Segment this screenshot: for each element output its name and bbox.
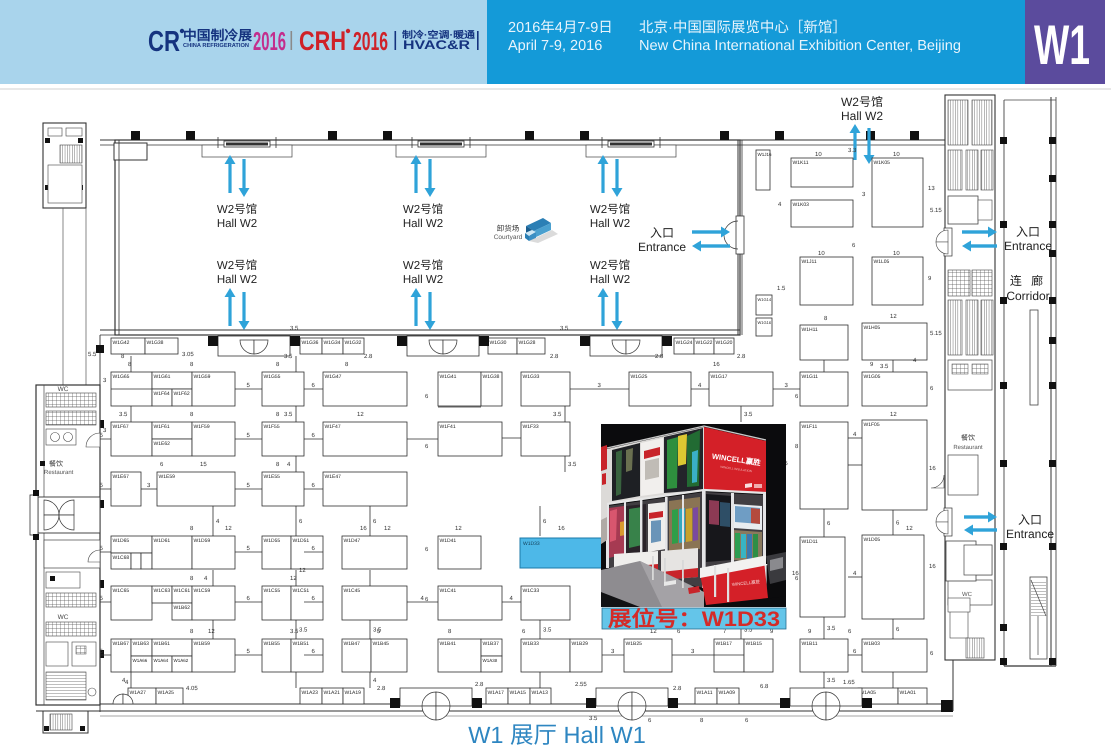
svg-text:2016: 2016 — [253, 26, 286, 56]
svg-text:Restaurant: Restaurant — [44, 469, 74, 476]
svg-text:W1G11: W1G11 — [802, 374, 819, 380]
svg-text:W1F41: W1F41 — [440, 424, 456, 430]
svg-text:入口: 入口 — [650, 226, 674, 240]
svg-text:W1C68: W1C68 — [113, 555, 130, 561]
svg-text:W1A17: W1A17 — [488, 690, 505, 696]
svg-text:3.5: 3.5 — [290, 325, 299, 332]
svg-text:3.5: 3.5 — [543, 627, 552, 634]
svg-text:W1F11: W1F11 — [802, 424, 818, 430]
svg-text:3.5: 3.5 — [284, 353, 293, 360]
svg-text:16: 16 — [713, 361, 720, 368]
svg-text:W1A11: W1A11 — [697, 690, 713, 696]
svg-text:2.8: 2.8 — [737, 353, 746, 360]
svg-text:W1G33: W1G33 — [523, 374, 540, 380]
svg-text:12: 12 — [208, 628, 215, 635]
svg-text:W1A23: W1A23 — [302, 690, 319, 696]
svg-text:连 廊: 连 廊 — [1010, 274, 1046, 288]
svg-text:W1E62: W1E62 — [154, 441, 171, 447]
svg-text:W1B15: W1B15 — [746, 641, 763, 647]
svg-text:W1B63: W1B63 — [133, 641, 150, 647]
svg-text:W1G38: W1G38 — [147, 340, 164, 346]
svg-text:HVAC&R: HVAC&R — [403, 38, 470, 52]
svg-text:W1G17: W1G17 — [711, 374, 728, 380]
svg-text:W1F05: W1F05 — [864, 422, 880, 428]
svg-text:Hall W2: Hall W2 — [590, 274, 630, 286]
svg-text:W1B62: W1B62 — [174, 605, 191, 611]
svg-text:W1K11: W1K11 — [793, 160, 809, 166]
svg-text:W1K05: W1K05 — [874, 160, 891, 166]
svg-text:10: 10 — [893, 250, 900, 257]
svg-text:3.5: 3.5 — [827, 677, 836, 684]
svg-text:12: 12 — [890, 411, 897, 418]
svg-text:W1B55: W1B55 — [264, 641, 281, 647]
svg-text:W1A38: W1A38 — [483, 658, 498, 663]
svg-text:W1G28: W1G28 — [519, 340, 536, 346]
svg-text:W1C63: W1C63 — [154, 588, 171, 594]
svg-text:W1J11: W1J11 — [802, 259, 817, 265]
svg-text:W2号馆: W2号馆 — [403, 203, 443, 216]
svg-text:2.8: 2.8 — [364, 353, 373, 360]
svg-text:W1E67: W1E67 — [113, 474, 130, 480]
svg-text:W1D65: W1D65 — [113, 538, 130, 544]
svg-text:W1G55: W1G55 — [264, 374, 281, 380]
svg-text:中国制冷展: 中国制冷展 — [183, 28, 253, 43]
svg-text:W1L05: W1L05 — [874, 259, 890, 265]
svg-text:5.15: 5.15 — [930, 330, 942, 337]
svg-text:W2号馆: W2号馆 — [590, 259, 630, 272]
svg-text:WC: WC — [58, 386, 69, 393]
svg-text:2016: 2016 — [353, 26, 388, 56]
svg-text:W1A66: W1A66 — [133, 658, 148, 663]
svg-text:15: 15 — [200, 461, 207, 468]
svg-text:3.5: 3.5 — [284, 411, 293, 418]
svg-text:W1C33: W1C33 — [523, 588, 540, 594]
svg-text:W2号馆: W2号馆 — [217, 259, 257, 272]
svg-text:W1D51: W1D51 — [293, 538, 310, 544]
svg-text:餐饮: 餐饮 — [961, 434, 975, 442]
svg-text:W1B67: W1B67 — [113, 641, 130, 647]
svg-text:W1F67: W1F67 — [113, 424, 129, 430]
svg-text:WC: WC — [962, 591, 973, 598]
svg-text:W1G14: W1G14 — [758, 297, 772, 302]
svg-text:W1G30: W1G30 — [490, 340, 507, 346]
svg-text:12: 12 — [299, 567, 306, 574]
svg-text:W1J16: W1J16 — [758, 152, 773, 157]
svg-text:W1A13: W1A13 — [532, 690, 549, 696]
svg-text:Entrance: Entrance — [1004, 239, 1052, 253]
svg-text:W1B45: W1B45 — [373, 641, 390, 647]
svg-text:12: 12 — [455, 525, 462, 532]
svg-text:2.8: 2.8 — [377, 685, 386, 692]
svg-text:W1G36: W1G36 — [302, 340, 319, 346]
svg-text:W1G42: W1G42 — [113, 340, 130, 346]
svg-text:10: 10 — [893, 151, 900, 158]
svg-text:W1F64: W1F64 — [154, 391, 170, 397]
svg-text:Restaurant: Restaurant — [953, 444, 983, 451]
svg-text:Hall W2: Hall W2 — [217, 218, 257, 230]
svg-text:2016年4月7-9日: 2016年4月7-9日 — [508, 19, 613, 36]
svg-text:3.05: 3.05 — [182, 351, 194, 358]
svg-text:W1A27: W1A27 — [130, 690, 147, 696]
svg-text:CR: CR — [148, 26, 180, 58]
svg-text:W1D61: W1D61 — [154, 538, 171, 544]
svg-text:WC: WC — [58, 614, 69, 621]
svg-text:W1D11: W1D11 — [802, 539, 819, 545]
svg-text:Hall W2: Hall W2 — [403, 218, 443, 230]
svg-text:W1G38: W1G38 — [483, 374, 500, 380]
svg-text:W1F62: W1F62 — [174, 391, 190, 397]
svg-text:W1C51: W1C51 — [293, 588, 310, 594]
svg-text:W1F55: W1F55 — [264, 424, 280, 430]
svg-text:入口: 入口 — [1016, 225, 1040, 239]
svg-text:W1A19: W1A19 — [345, 690, 362, 696]
svg-text:New China International Exhibi: New China International Exhibition Cente… — [639, 38, 961, 54]
svg-text:W1A21: W1A21 — [324, 690, 341, 696]
svg-text:W2号馆: W2号馆 — [217, 203, 257, 216]
svg-text:W1B11: W1B11 — [802, 641, 818, 647]
svg-text:W1 展厅 Hall W1: W1 展厅 Hall W1 — [468, 722, 646, 748]
svg-text:W1A01: W1A01 — [900, 690, 917, 696]
svg-text:W1A09: W1A09 — [719, 690, 736, 696]
svg-text:餐饮: 餐饮 — [49, 460, 63, 468]
svg-text:W1G47: W1G47 — [325, 374, 342, 380]
svg-text:3.5: 3.5 — [553, 411, 562, 418]
svg-text:12: 12 — [357, 411, 364, 418]
svg-text:3.5: 3.5 — [744, 411, 753, 418]
svg-text:W1G59: W1G59 — [194, 374, 211, 380]
svg-text:W1D33: W1D33 — [523, 541, 540, 547]
svg-text:W1C59: W1C59 — [194, 588, 211, 594]
svg-text:3.5: 3.5 — [290, 628, 299, 635]
svg-text:3.3: 3.3 — [848, 147, 857, 154]
svg-text:6.8: 6.8 — [760, 683, 769, 690]
svg-text:W1B29: W1B29 — [572, 641, 589, 647]
svg-text:W1B59: W1B59 — [194, 641, 211, 647]
svg-text:W1H11: W1H11 — [802, 327, 819, 333]
svg-text:2.8: 2.8 — [655, 353, 664, 360]
svg-text:16: 16 — [360, 525, 367, 532]
svg-text:W1E59: W1E59 — [159, 474, 176, 480]
svg-text:1.65: 1.65 — [843, 679, 855, 686]
svg-text:W1C61: W1C61 — [174, 588, 191, 594]
svg-text:CRH: CRH — [299, 26, 346, 56]
svg-text:Entrance: Entrance — [638, 240, 686, 254]
svg-text:W1C65: W1C65 — [113, 588, 130, 594]
svg-text:Entrance: Entrance — [1006, 527, 1054, 541]
svg-text:10: 10 — [815, 151, 822, 158]
svg-text:13: 13 — [928, 185, 935, 192]
svg-text:W1A62: W1A62 — [174, 658, 189, 663]
svg-text:W1G22: W1G22 — [696, 340, 713, 346]
svg-text:12: 12 — [225, 525, 232, 532]
svg-text:W1A64: W1A64 — [154, 658, 169, 663]
svg-text:入口: 入口 — [1018, 513, 1042, 527]
svg-text:5.15: 5.15 — [930, 207, 942, 214]
svg-text:W1B61: W1B61 — [154, 641, 171, 647]
svg-text:W1G34: W1G34 — [324, 340, 341, 346]
svg-text:W1G16: W1G16 — [758, 320, 772, 325]
svg-text:W1G20: W1G20 — [716, 340, 733, 346]
svg-text:W2号馆: W2号馆 — [403, 259, 443, 272]
svg-text:12: 12 — [906, 525, 913, 532]
svg-text:Hall W2: Hall W2 — [217, 274, 257, 286]
svg-text:16: 16 — [929, 465, 936, 472]
svg-text:W1B51: W1B51 — [293, 641, 310, 647]
svg-text:W1K03: W1K03 — [793, 202, 810, 208]
svg-text:2.8: 2.8 — [550, 353, 559, 360]
svg-text:3.5: 3.5 — [827, 625, 836, 632]
svg-text:W1G65: W1G65 — [113, 374, 130, 380]
svg-text:W1C41: W1C41 — [440, 588, 457, 594]
svg-text:12: 12 — [890, 313, 897, 320]
svg-text:W1G32: W1G32 — [345, 340, 362, 346]
svg-text:W1F59: W1F59 — [194, 424, 210, 430]
svg-text:W1G05: W1G05 — [864, 374, 881, 380]
svg-text:W1B25: W1B25 — [626, 641, 643, 647]
svg-text:北京·中国国际展览中心［新馆］: 北京·中国国际展览中心［新馆］ — [639, 19, 847, 36]
svg-text:W2号馆: W2号馆 — [590, 203, 630, 216]
svg-text:W1D05: W1D05 — [864, 537, 881, 543]
svg-text:12: 12 — [384, 525, 391, 532]
svg-text:Hall W2: Hall W2 — [841, 109, 883, 123]
svg-text:3.5: 3.5 — [589, 715, 598, 722]
svg-text:Hall W2: Hall W2 — [403, 274, 443, 286]
svg-text:Courtyard: Courtyard — [494, 234, 523, 241]
svg-text:W1G61: W1G61 — [154, 374, 171, 380]
svg-text:3.5: 3.5 — [568, 461, 577, 468]
svg-text:卸货场: 卸货场 — [497, 224, 520, 233]
svg-text:W2号馆: W2号馆 — [841, 95, 883, 109]
svg-text:April 7-9, 2016: April 7-9, 2016 — [508, 38, 602, 54]
svg-text:W1B03: W1B03 — [864, 641, 881, 647]
svg-text:CHINA REFRIGERATION: CHINA REFRIGERATION — [183, 42, 249, 49]
svg-text:W1B17: W1B17 — [716, 641, 733, 647]
svg-text:W1B41: W1B41 — [440, 641, 457, 647]
svg-text:展位号：W1D33: 展位号：W1D33 — [608, 607, 780, 631]
svg-text:Corridor: Corridor — [1006, 289, 1049, 303]
svg-text:5.5: 5.5 — [88, 351, 97, 358]
svg-text:16: 16 — [558, 525, 565, 532]
svg-text:4.05: 4.05 — [186, 685, 198, 692]
svg-text:3.5: 3.5 — [560, 325, 569, 332]
svg-text:3.5: 3.5 — [880, 363, 889, 370]
svg-text:W1G24: W1G24 — [676, 340, 693, 346]
svg-text:W1A25: W1A25 — [158, 690, 175, 696]
svg-text:2.8: 2.8 — [673, 685, 682, 692]
svg-text:1.5: 1.5 — [777, 285, 786, 292]
svg-text:W1D47: W1D47 — [344, 538, 361, 544]
svg-text:10: 10 — [818, 250, 825, 257]
svg-text:W1D55: W1D55 — [264, 538, 281, 544]
svg-text:2.55: 2.55 — [575, 681, 587, 688]
svg-text:W1C45: W1C45 — [344, 588, 361, 594]
svg-text:W1F61: W1F61 — [154, 424, 170, 430]
svg-text:12: 12 — [290, 575, 297, 582]
svg-text:W1F47: W1F47 — [325, 424, 341, 430]
svg-text:16: 16 — [929, 563, 936, 570]
svg-text:Hall W2: Hall W2 — [590, 218, 630, 230]
svg-text:W1C55: W1C55 — [264, 588, 281, 594]
svg-text:3.5: 3.5 — [119, 411, 128, 418]
svg-text:W1B47: W1B47 — [344, 641, 361, 647]
svg-text:W1G41: W1G41 — [440, 374, 457, 380]
svg-text:W1: W1 — [1034, 13, 1090, 76]
svg-text:W1D59: W1D59 — [194, 538, 211, 544]
svg-text:2.8: 2.8 — [475, 681, 484, 688]
svg-text:3.5: 3.5 — [299, 627, 308, 634]
svg-text:W1B33: W1B33 — [523, 641, 540, 647]
svg-text:W1F33: W1F33 — [523, 424, 539, 430]
svg-text:W1B37: W1B37 — [483, 641, 500, 647]
svg-text:W1G25: W1G25 — [631, 374, 648, 380]
svg-text:W1E47: W1E47 — [325, 474, 342, 480]
svg-text:W1A15: W1A15 — [510, 690, 527, 696]
svg-text:W1E55: W1E55 — [264, 474, 281, 480]
svg-text:W1D41: W1D41 — [440, 538, 457, 544]
svg-text:W1H05: W1H05 — [864, 325, 881, 331]
